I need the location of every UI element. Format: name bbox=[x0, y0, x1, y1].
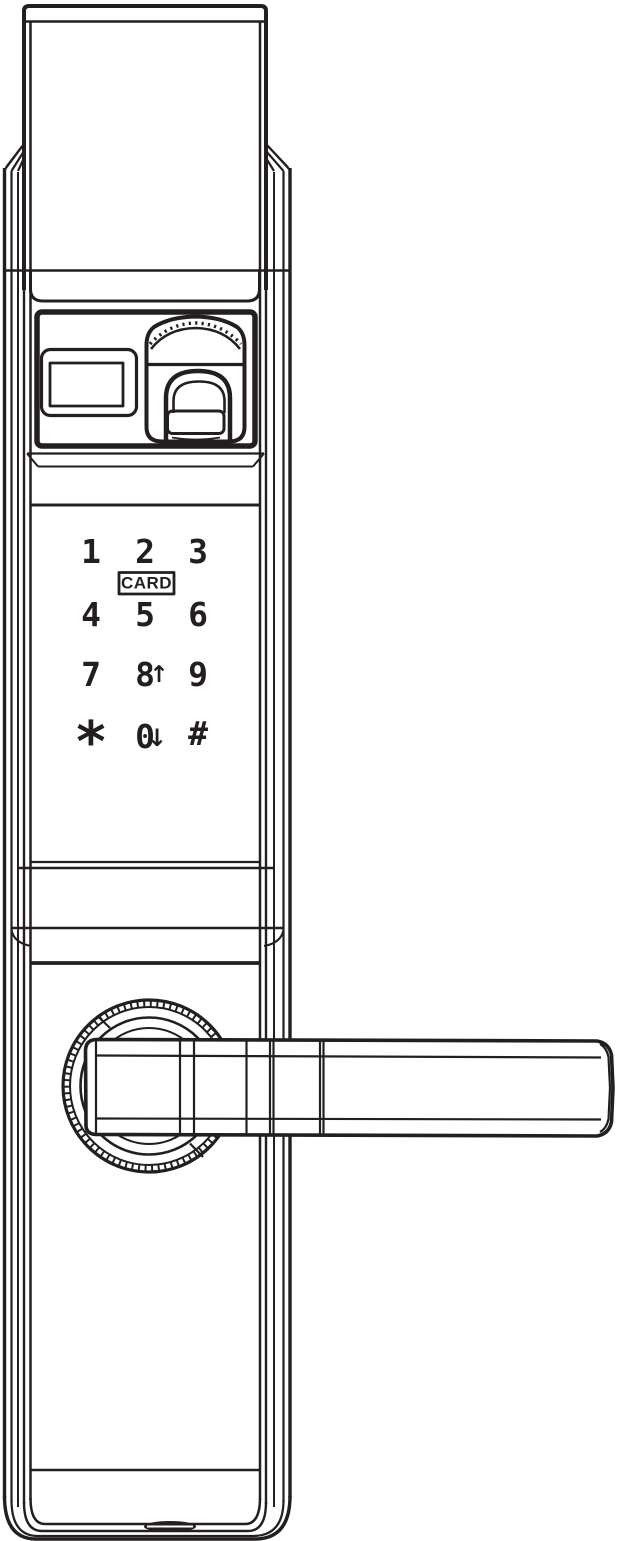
key-4: 4 bbox=[81, 595, 101, 634]
up-arrow-icon: ↑ bbox=[149, 662, 168, 688]
smart-lock-front-view-drawing: 1 2 3 CARD 4 5 6 7 8 ↑ 9 * 0 ↓ # bbox=[0, 0, 617, 1541]
key-6: 6 bbox=[188, 595, 208, 634]
key-1: 1 bbox=[81, 532, 101, 571]
key-3: 3 bbox=[188, 532, 208, 571]
lever-handle-icon bbox=[86, 1040, 614, 1137]
key-hash: # bbox=[188, 714, 208, 753]
key-7: 7 bbox=[81, 655, 101, 694]
down-arrow-icon: ↓ bbox=[147, 724, 167, 752]
key-9: 9 bbox=[188, 655, 208, 694]
key-5: 5 bbox=[135, 595, 155, 634]
keyway-icon bbox=[144, 1521, 196, 1532]
lever-outline bbox=[86, 1040, 614, 1137]
key-star: * bbox=[74, 710, 108, 775]
key-2: 2 bbox=[135, 532, 155, 571]
card-badge-label: CARD bbox=[121, 574, 172, 593]
